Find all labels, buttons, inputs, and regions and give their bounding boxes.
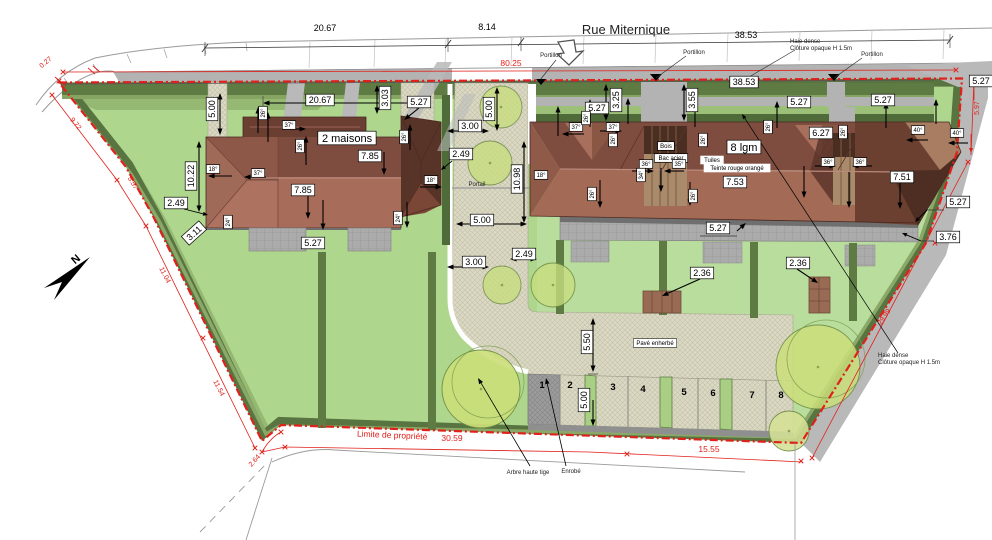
svg-text:Limite de propriété: Limite de propriété <box>357 428 428 441</box>
svg-text:5.27: 5.27 <box>874 95 892 105</box>
svg-text:9.72: 9.72 <box>68 117 82 132</box>
svg-text:36°: 36° <box>855 160 865 166</box>
svg-text:36°: 36° <box>641 162 651 168</box>
svg-text:24°: 24° <box>396 213 402 223</box>
svg-text:26°: 26° <box>402 132 408 142</box>
svg-text:8: 8 <box>778 390 783 401</box>
svg-text:7.53: 7.53 <box>726 177 744 187</box>
svg-text:2.64: 2.64 <box>248 454 262 469</box>
svg-text:6: 6 <box>710 388 715 399</box>
svg-text:5.00: 5.00 <box>579 391 589 409</box>
svg-text:40°: 40° <box>952 131 962 137</box>
svg-text:5.97: 5.97 <box>974 101 981 115</box>
svg-text:2 maisons: 2 maisons <box>322 133 373 145</box>
svg-text:26°: 26° <box>701 135 707 145</box>
svg-text:10.98: 10.98 <box>512 168 522 191</box>
svg-text:26°: 26° <box>584 113 590 123</box>
svg-text:2.49: 2.49 <box>452 149 470 159</box>
svg-text:Haie dense: Haie dense <box>790 39 821 45</box>
svg-text:20.67: 20.67 <box>309 95 332 105</box>
svg-text:Tuiles: Tuiles <box>704 158 720 164</box>
svg-text:26°: 26° <box>298 141 304 151</box>
svg-text:5.27: 5.27 <box>790 97 808 107</box>
svg-text:37°: 37° <box>284 123 294 129</box>
svg-text:11.54: 11.54 <box>211 379 225 397</box>
svg-text:38.53: 38.53 <box>733 77 756 87</box>
svg-text:3.00: 3.00 <box>461 121 479 131</box>
svg-text:7.85: 7.85 <box>294 185 312 195</box>
svg-text:3.03: 3.03 <box>380 89 390 107</box>
svg-text:20.67: 20.67 <box>314 23 337 33</box>
svg-text:8.14: 8.14 <box>478 22 496 32</box>
svg-text:Portail: Portail <box>468 182 485 188</box>
svg-text:Enrobé: Enrobé <box>561 469 581 475</box>
svg-text:37°: 37° <box>608 125 618 131</box>
svg-text:18°: 18° <box>208 167 218 173</box>
svg-text:5.27: 5.27 <box>410 97 428 107</box>
svg-text:3.25: 3.25 <box>611 91 621 109</box>
svg-text:Portillon: Portillon <box>540 53 562 59</box>
svg-text:26°: 26° <box>611 135 617 145</box>
svg-text:3: 3 <box>610 382 615 393</box>
svg-text:6.27: 6.27 <box>812 128 830 138</box>
svg-text:26°: 26° <box>766 122 772 132</box>
svg-text:5.00: 5.00 <box>473 215 491 225</box>
svg-text:Portillon: Portillon <box>861 52 883 58</box>
svg-text:5.27: 5.27 <box>972 76 990 86</box>
svg-text:1: 1 <box>539 380 545 391</box>
svg-text:8 lgm: 8 lgm <box>731 142 758 154</box>
svg-text:2.49: 2.49 <box>515 249 533 259</box>
svg-text:40°: 40° <box>913 128 923 134</box>
svg-text:5.00: 5.00 <box>207 100 217 118</box>
svg-text:5: 5 <box>681 387 687 398</box>
svg-text:10.22: 10.22 <box>186 165 196 188</box>
svg-text:5.27: 5.27 <box>304 238 322 248</box>
svg-text:11.04: 11.04 <box>157 266 171 284</box>
svg-text:34°: 34° <box>639 170 645 180</box>
svg-text:26°: 26° <box>841 127 847 137</box>
svg-text:Rue Miternique: Rue Miternique <box>582 22 670 37</box>
svg-text:35°: 35° <box>674 162 684 168</box>
svg-text:26°: 26° <box>590 189 596 199</box>
svg-text:5.27: 5.27 <box>949 197 967 207</box>
svg-text:7.51: 7.51 <box>893 172 911 182</box>
svg-text:5.27: 5.27 <box>588 103 606 113</box>
svg-text:Arbre haute tige: Arbre haute tige <box>507 470 550 476</box>
svg-text:5.50: 5.50 <box>582 333 592 351</box>
svg-text:3.76: 3.76 <box>939 232 957 242</box>
svg-text:38.53: 38.53 <box>735 30 758 40</box>
svg-text:7: 7 <box>749 390 754 401</box>
svg-text:37°: 37° <box>571 125 581 131</box>
svg-text:2.49: 2.49 <box>167 198 185 208</box>
svg-text:2: 2 <box>567 380 572 391</box>
svg-text:30.59: 30.59 <box>441 433 463 443</box>
svg-text:5.00: 5.00 <box>484 100 494 118</box>
svg-text:4: 4 <box>640 384 646 395</box>
svg-text:37°: 37° <box>253 171 263 177</box>
svg-text:Portillon: Portillon <box>683 50 705 56</box>
svg-text:2.36: 2.36 <box>789 258 807 268</box>
svg-text:18°: 18° <box>536 173 546 179</box>
svg-text:Bois: Bois <box>660 144 672 150</box>
svg-text:15.55: 15.55 <box>698 444 720 454</box>
svg-text:Clôture opaque H 1.5m: Clôture opaque H 1.5m <box>790 46 852 52</box>
svg-text:2.36: 2.36 <box>693 268 711 278</box>
svg-text:18°: 18° <box>426 178 436 184</box>
svg-text:5.27: 5.27 <box>709 223 727 233</box>
svg-text:26°: 26° <box>261 108 267 118</box>
svg-text:Clôture opaque H 1.5m: Clôture opaque H 1.5m <box>878 360 940 366</box>
svg-text:Haie dense: Haie dense <box>878 353 909 359</box>
svg-text:36°: 36° <box>823 160 833 166</box>
svg-text:3.00: 3.00 <box>465 257 483 267</box>
svg-text:24°: 24° <box>226 217 232 227</box>
svg-text:Pavé enherbé: Pavé enherbé <box>636 341 674 347</box>
svg-text:26°: 26° <box>691 191 697 201</box>
svg-text:7.85: 7.85 <box>361 151 379 161</box>
svg-text:3.55: 3.55 <box>687 91 697 109</box>
svg-text:Teinte rouge orangé: Teinte rouge orangé <box>710 166 764 172</box>
svg-text:80.25: 80.25 <box>500 58 522 68</box>
